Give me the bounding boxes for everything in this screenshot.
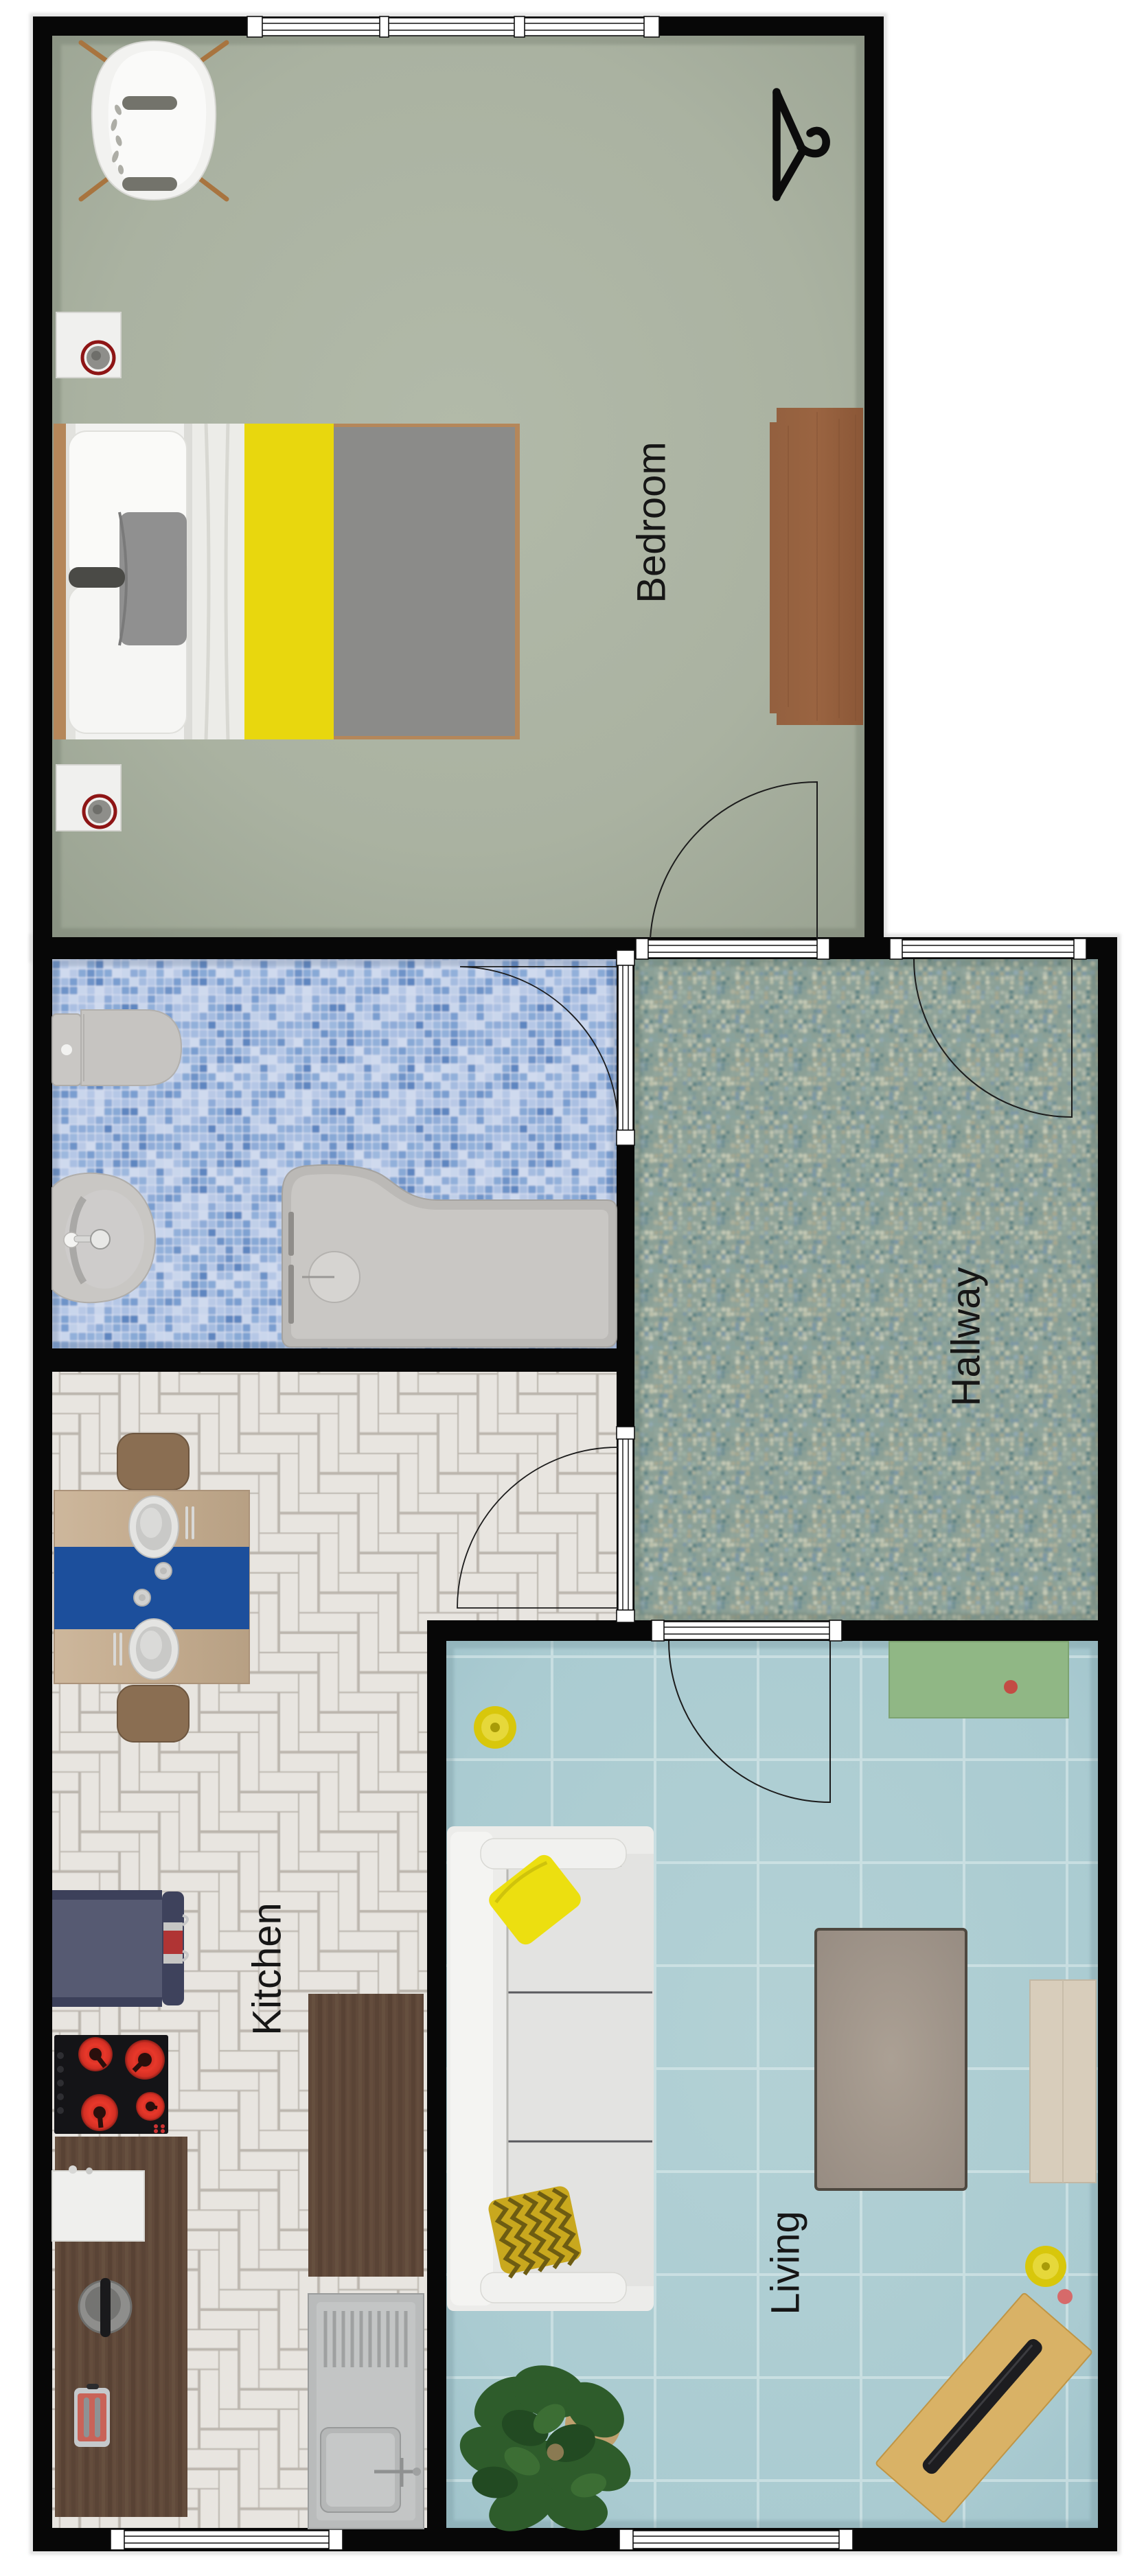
- svg-text:Kitchen: Kitchen: [244, 1902, 289, 2035]
- svg-text:Living: Living: [763, 2211, 807, 2315]
- svg-text:Hallway: Hallway: [943, 1267, 988, 1406]
- svg-text:Bedroom: Bedroom: [629, 441, 674, 603]
